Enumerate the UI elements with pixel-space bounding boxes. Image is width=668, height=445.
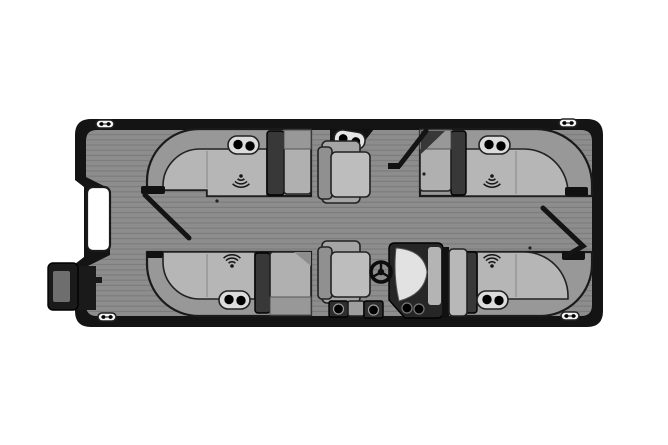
small-marker — [528, 246, 531, 249]
cleat-bottom-right — [561, 312, 579, 320]
cup-holder-hole — [494, 296, 503, 305]
console-side-panel — [428, 247, 441, 305]
cup-holder-hole — [402, 303, 412, 313]
chair-seat — [331, 252, 370, 297]
cup-holder-hole — [236, 296, 245, 305]
cup-holder-hole — [484, 140, 493, 149]
lounge-end-cap — [565, 187, 588, 196]
chair-backrest — [318, 147, 332, 199]
cleat-top-right — [559, 119, 577, 127]
partition-panel — [449, 249, 467, 316]
chair-backrest — [318, 247, 332, 299]
small-marker — [215, 199, 218, 202]
cup-holder-hole — [369, 305, 379, 315]
cup-holder-hole — [233, 140, 242, 149]
cleat-top-left — [96, 120, 114, 128]
armrest-block — [267, 131, 284, 195]
motor-cowl — [53, 271, 70, 302]
cup-holder-hole — [482, 295, 491, 304]
armrest-block — [451, 131, 466, 195]
cup-holder-hole — [245, 141, 254, 150]
cup-holder-hole — [496, 141, 505, 150]
cup-holder-hole — [224, 295, 233, 304]
corner-seat-backrest — [270, 297, 311, 315]
boat-floorplan-image — [0, 0, 668, 445]
cup-holder-hole — [414, 304, 424, 314]
helm-step — [329, 301, 383, 318]
cleat-bottom-left — [98, 313, 116, 321]
small-marker — [422, 172, 425, 175]
cup-holder-hole — [334, 304, 344, 314]
privacy-partition — [442, 247, 467, 317]
pontoon-floorplan — [0, 0, 668, 445]
lounge-cushion — [163, 149, 267, 196]
stern-gate-panel — [87, 187, 110, 251]
outboard-motor — [48, 263, 102, 310]
corner-seat-backrest — [284, 130, 311, 149]
step-box — [348, 301, 364, 316]
motor-bracket-arm — [90, 277, 102, 283]
partition-frame — [442, 247, 449, 317]
gate-door-stop — [388, 163, 400, 169]
lounge-end-cap — [147, 251, 163, 258]
armrest-block — [255, 253, 270, 313]
helm-console — [389, 243, 443, 318]
lounge-bottom-left — [147, 251, 311, 316]
chair-seat — [331, 152, 370, 197]
